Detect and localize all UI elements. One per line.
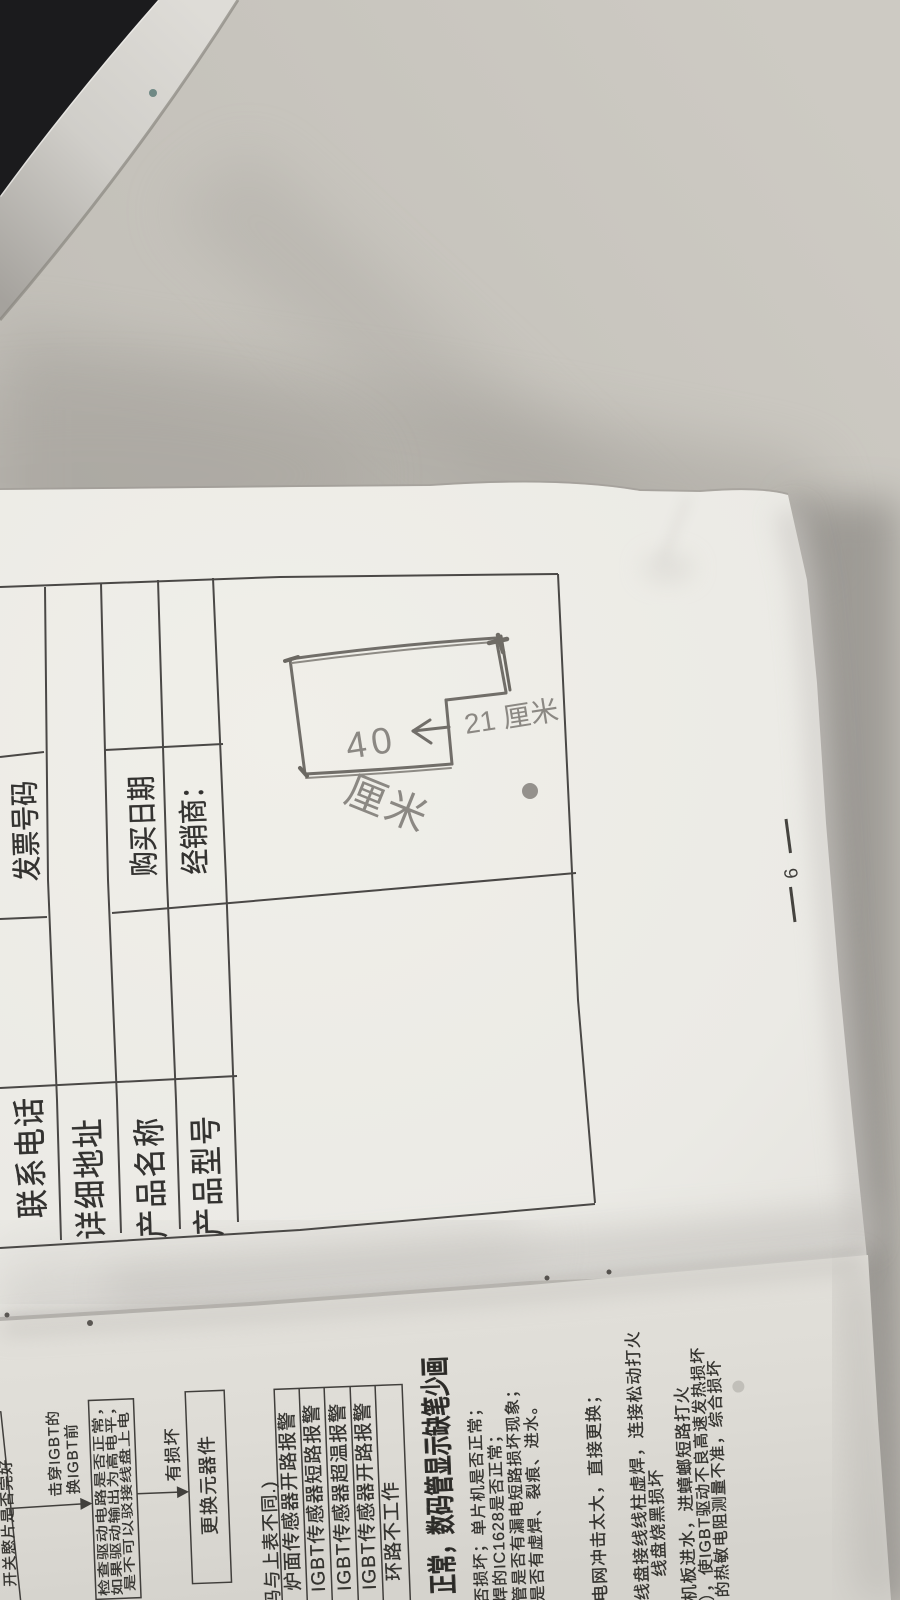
svg-text:产品名称: 产品名称 <box>131 1116 172 1239</box>
svg-text:联系电话: 联系电话 <box>11 1096 52 1219</box>
svg-text:40: 40 <box>343 718 400 766</box>
svg-text:环路不工作: 环路不工作 <box>380 1481 406 1582</box>
svg-text:6: 6 <box>781 867 803 880</box>
svg-text:详细地址: 详细地址 <box>70 1117 111 1240</box>
svg-text:击穿IGBT的: 击穿IGBT的 <box>45 1410 65 1498</box>
svg-text:购买日期: 购买日期 <box>124 775 161 877</box>
svg-text:产品型号: 产品型号 <box>187 1114 228 1237</box>
svg-text:换IGBT前: 换IGBT前 <box>63 1423 83 1495</box>
svg-text:发票号码: 发票号码 <box>7 780 44 882</box>
svg-text:经销商：: 经销商： <box>175 773 212 875</box>
svg-text:有损坏: 有损坏 <box>163 1427 184 1482</box>
svg-text:更换元器件: 更换元器件 <box>196 1435 222 1536</box>
